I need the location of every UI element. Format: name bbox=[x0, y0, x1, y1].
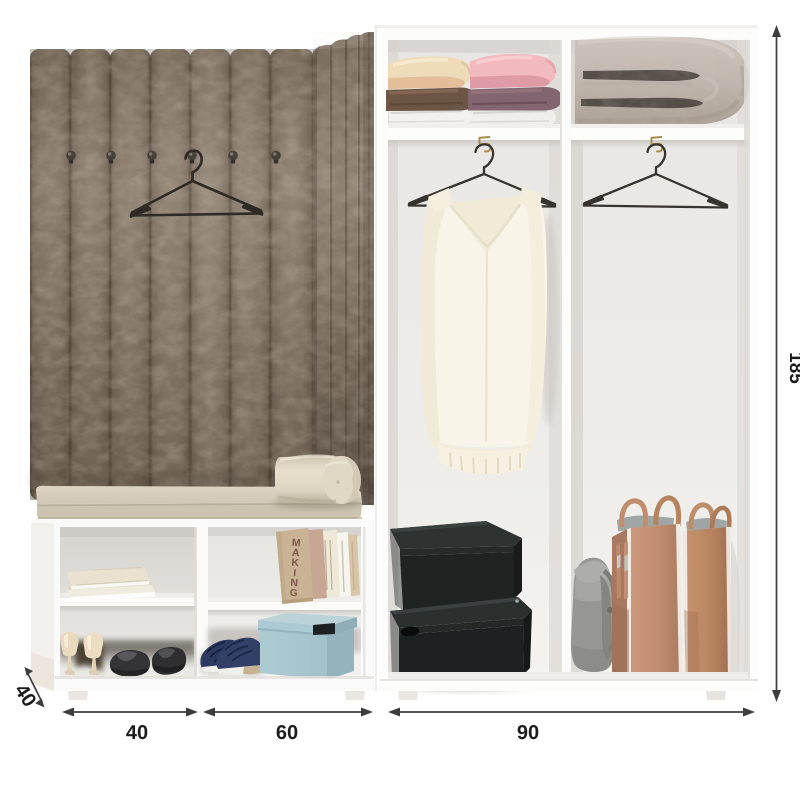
svg-text:60: 60 bbox=[276, 722, 298, 744]
svg-text:40: 40 bbox=[126, 722, 148, 744]
svg-text:90: 90 bbox=[517, 722, 539, 744]
svg-text:G: G bbox=[289, 588, 298, 600]
svg-text:185: 185 bbox=[785, 352, 800, 384]
